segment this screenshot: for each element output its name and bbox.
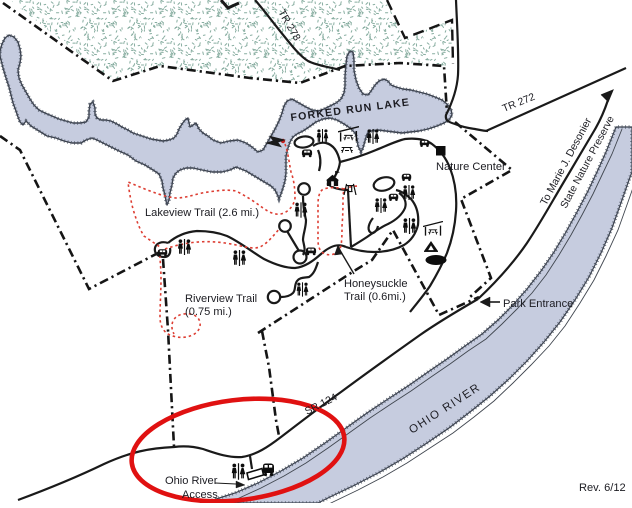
svg-text:(0.75 mi.): (0.75 mi.): [185, 306, 232, 318]
svg-text:Honeysuckle: Honeysuckle: [344, 278, 408, 290]
svg-text:Nature Center: Nature Center: [436, 161, 506, 173]
svg-text:Trail (0.6mi.): Trail (0.6mi.): [344, 291, 406, 303]
svg-text:Access: Access: [182, 489, 218, 501]
svg-text:Rev. 6/12: Rev. 6/12: [579, 482, 626, 494]
svg-text:Lakeview Trail (2.6 mi.): Lakeview Trail (2.6 mi.): [145, 207, 259, 219]
svg-text:Riverview Trail: Riverview Trail: [185, 293, 257, 305]
svg-text:Park Entrance: Park Entrance: [503, 298, 573, 310]
svg-text:Ohio River: Ohio River: [165, 475, 218, 487]
